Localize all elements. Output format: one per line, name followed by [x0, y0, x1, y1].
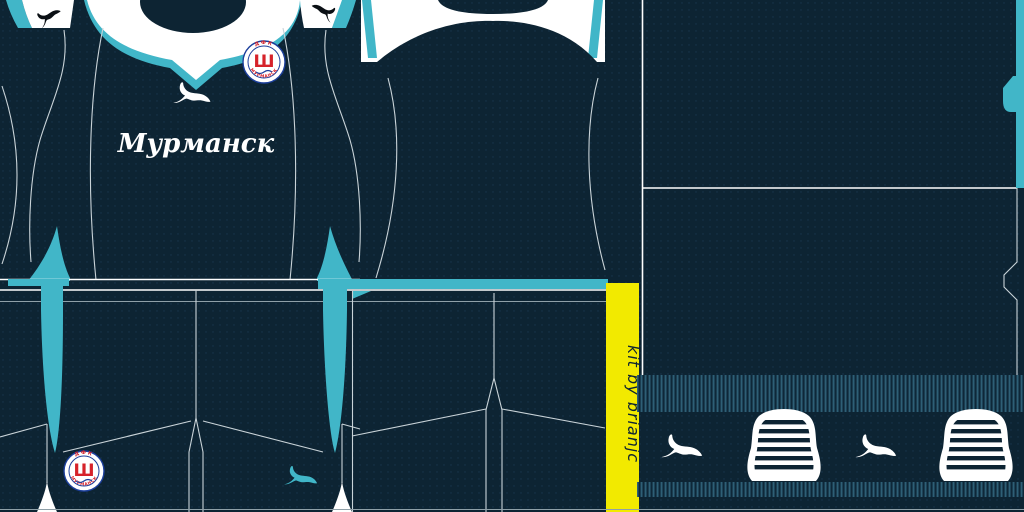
badge-letter: Ш: [73, 461, 94, 481]
left-cuff: [6, 0, 74, 28]
sock-rib-band-top: [637, 375, 1024, 412]
club-badge: ДФК МУРМАНСК Ш: [64, 450, 104, 491]
right-cuff: [300, 0, 356, 28]
kit-texture-sheet: ДФК МУРМАНСК Ш Мурманск: [0, 0, 1024, 512]
badge-letter: Ш: [253, 52, 274, 72]
waistband-back: [318, 279, 608, 289]
back-body: [361, 21, 605, 290]
club-badge: ДФК МУРМАНСК Ш: [243, 40, 285, 83]
shirt-back-panel: [361, 0, 605, 290]
sock-rib-band-bottom: [637, 482, 1024, 497]
waistband-front-left: [8, 279, 69, 286]
club-city-text: Мурманск: [117, 129, 275, 159]
